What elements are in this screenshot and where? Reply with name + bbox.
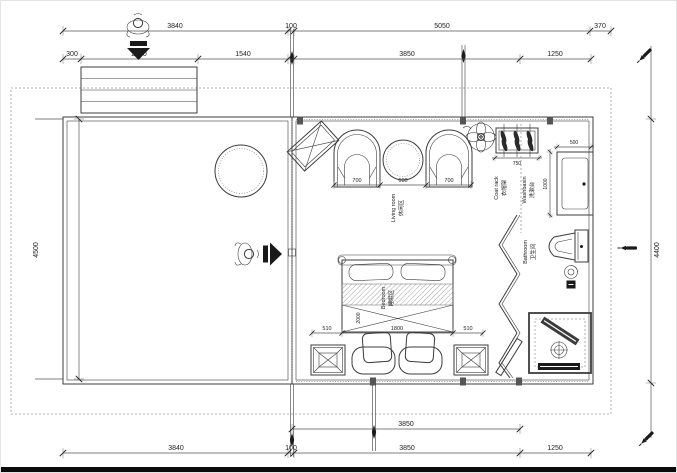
dim-1250-bottom: 1250 — [547, 445, 563, 452]
dim-washbasin-500: 500 — [570, 140, 579, 146]
bottom-edge-bar — [1, 467, 677, 473]
dim-3850-top: 3850 — [399, 51, 415, 58]
coat-rack-label-zh: 衣帽架 — [500, 179, 508, 196]
dim-bed-2000: 2000 — [356, 312, 362, 323]
dim-100-bottom: 100 — [285, 445, 297, 452]
bathroom-label-zh: 卫生间 — [529, 244, 537, 261]
coat-rack-label-en: Coat rack — [494, 176, 500, 200]
bed-runner — [342, 284, 453, 305]
floor-plan-screenshot: 3840 100 5050 370 300 2000 1540 3850 125… — [0, 0, 677, 473]
dim-top-100: 100 — [285, 23, 297, 30]
dim-bed-510-right: 510 — [463, 326, 472, 332]
dim-1250-top: 1250 — [547, 51, 563, 58]
dim-300: 300 — [66, 51, 78, 58]
dim-table-600: 600 — [398, 178, 407, 184]
dim-3850-bottom-inner: 3850 — [398, 421, 414, 428]
dim-chair-700: 700 — [444, 178, 453, 184]
dim-coat-rack-750: 750 — [513, 161, 522, 167]
canvas-background — [1, 1, 677, 473]
dim-3840-bottom: 3840 — [168, 445, 184, 452]
dim-1540: 1540 — [235, 51, 251, 58]
bathroom-label-en: Bathroom — [523, 240, 529, 264]
washbasin-label-zh: 洗漱台 — [528, 181, 536, 198]
dim-4400: 4400 — [654, 242, 661, 258]
washbasin-label-en: Washbasin — [522, 176, 528, 203]
dim-3850-bottom: 3850 — [399, 445, 415, 452]
dim-4500: 4500 — [33, 242, 40, 258]
living-room-label-zh: 休闲区 — [397, 199, 405, 216]
dim-top-5050: 5050 — [434, 23, 450, 30]
faucet-icon — [582, 182, 585, 185]
dim-washbasin-1000: 1000 — [543, 178, 549, 189]
dim-bed-1800: 1800 — [391, 326, 403, 332]
bedroom-label-zh: 睡眠区 — [387, 289, 395, 306]
bedroom-label-en: Bedroom — [381, 286, 387, 309]
floor-plan-svg: 3840 100 5050 370 300 2000 1540 3850 125… — [1, 1, 677, 473]
living-room-label-en: Living room — [391, 193, 397, 222]
dim-bed-510-left: 510 — [322, 326, 331, 332]
dim-top-370: 370 — [594, 23, 606, 30]
dim-top-3840: 3840 — [167, 23, 183, 30]
dim-chair-700: 700 — [352, 178, 361, 184]
